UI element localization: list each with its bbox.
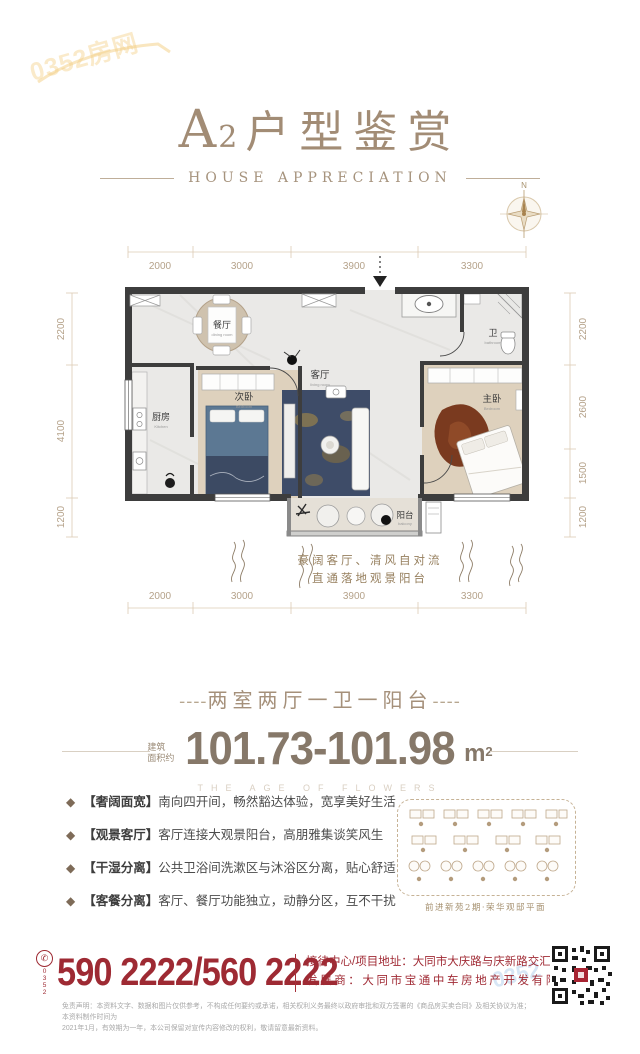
room-label-kitchen: 厨房 — [152, 411, 170, 422]
building-icon — [496, 836, 520, 852]
dim-top-1: 2000 — [149, 261, 172, 272]
area-prefix-2: 面积约 — [147, 753, 174, 764]
diamond-icon: ◆ — [66, 860, 75, 877]
legal-disclaimer: 免责声明：本资料文字、数据和图片仅供参考，不构成任何要约或承诺，相关权利义务最终… — [62, 1001, 532, 1034]
address-line-2: 发展商：大同市宝通中车房地产开发有限公司 — [306, 972, 588, 991]
building-icon — [536, 836, 560, 852]
compass-north-label: N — [521, 181, 527, 190]
building-icon — [478, 810, 502, 826]
dim-bottom-3: 3900 — [343, 591, 366, 602]
summary-block: ----两室两厅一卫一阳台---- 建筑 面积约 101.73-101.98 m… — [0, 684, 640, 793]
dim-bottom-1: 2000 — [149, 591, 172, 602]
building-icon — [505, 861, 526, 881]
diamond-icon: ◆ — [66, 827, 75, 844]
feature-text: 南向四开间，畅然豁达体验，宽享美好生活 — [158, 794, 396, 811]
dimension-left — [66, 293, 78, 537]
dim-bottom-2: 3000 — [231, 591, 254, 602]
dimension-bottom — [128, 602, 526, 614]
room-label-bedroom2-en: Bedroom — [236, 404, 253, 409]
title-number: 2 — [218, 120, 237, 155]
legal-line-1: 免责声明：本资料文字、数据和图片仅供参考，不构成任何要约或承诺，相关权利义务最终… — [62, 1001, 532, 1023]
room-label-kitchen-en: Kitchen — [154, 424, 167, 429]
title-cjk: 户型鉴赏 — [245, 107, 461, 158]
page-title: A2户型鉴赏 — [0, 96, 640, 160]
feature-text: 客厅、餐厅功能独立，动静分区，互不干扰 — [158, 893, 396, 910]
page-header: A2户型鉴赏 HOUSE APPRECIATION — [0, 96, 640, 186]
feature-text: 客厅连接大观景阳台，高朋雅集谈笑风生 — [158, 827, 383, 844]
room-label-living-en: living room — [310, 382, 330, 387]
dim-top-3: 3900 — [343, 261, 366, 272]
feature-tag: 【观景客厅】 — [83, 827, 158, 844]
plan-caption-line2: 直通落地观景阳台 — [312, 571, 428, 585]
building-icon — [412, 836, 436, 852]
qr-code[interactable] — [550, 944, 612, 1006]
subtitle: HOUSE APPRECIATION — [188, 170, 452, 186]
feature-tag: 【干湿分离】 — [83, 860, 158, 877]
dash-right: ---- — [433, 691, 461, 712]
dim-right-3: 1500 — [578, 461, 589, 484]
room-label-dining-en: dining room — [212, 332, 234, 337]
room-label-balcony: 阳台 — [396, 510, 413, 520]
dim-top-4: 3300 — [461, 261, 484, 272]
dimension-top — [128, 246, 526, 258]
building-icon — [512, 810, 536, 826]
dash-left: ---- — [179, 691, 207, 712]
legal-line-2: 2021年1月，有效期为一年，本公司保留对宣传内容修改的权利，敬请留意最新资料。 — [62, 1023, 532, 1034]
area-prefix: 建筑 面积约 — [147, 742, 174, 764]
entrance-arrow — [373, 256, 387, 287]
room-label-balcony-en: balcony — [398, 521, 412, 526]
title-letter: A — [179, 100, 219, 160]
dim-right-4: 1200 — [578, 505, 589, 528]
building-icon — [454, 836, 478, 852]
building-icon — [444, 810, 468, 826]
building-icon — [410, 810, 434, 826]
feature-tag: 【客餐分离】 — [83, 893, 158, 910]
area-value: 101.73-101.98 — [185, 721, 455, 775]
area-unit: m — [464, 740, 485, 768]
phone-icon-column: ✆ 0352 — [36, 950, 53, 996]
contact-bar: ✆ 0352 590 2222/560 2222 接待中心/项目地址：大同市大庆… — [0, 944, 640, 1004]
dim-left-2: 4100 — [56, 419, 67, 442]
area-rule-right — [490, 751, 578, 752]
dim-bottom-4: 3300 — [461, 591, 484, 602]
building-icon — [537, 861, 558, 881]
area-rule-left — [62, 751, 150, 752]
room-label-living: 客厅 — [310, 369, 330, 381]
dim-left-1: 2200 — [56, 317, 67, 340]
building-icon — [546, 810, 567, 826]
siteplan-map — [398, 800, 573, 893]
dim-right-1: 2200 — [578, 317, 589, 340]
plan-caption-line1: 豪阔客厅、清风自对流 — [298, 553, 443, 567]
dimension-right — [564, 293, 576, 537]
building-icon — [441, 861, 462, 881]
room-label-dining: 餐厅 — [213, 319, 231, 330]
room-label-bath-en: bathroom — [485, 340, 503, 345]
dim-top-2: 3000 — [231, 261, 254, 272]
diamond-icon: ◆ — [66, 794, 75, 811]
feature-list: ◆ 【奢阔面宽】 南向四开间，畅然豁达体验，宽享美好生活 ◆ 【观景客厅】 客厅… — [66, 794, 396, 926]
dim-left-3: 1200 — [56, 505, 67, 528]
floorplan: 2000 3000 3900 3300 2000 3000 3900 3300 … — [30, 240, 610, 620]
feature-item: ◆ 【干湿分离】 公共卫浴间洗漱区与沐浴区分离，贴心舒适 — [66, 860, 396, 877]
feature-item: ◆ 【客餐分离】 客厅、餐厅功能独立，动静分区，互不干扰 — [66, 893, 396, 910]
layout-line: ----两室两厅一卫一阳台---- — [0, 684, 640, 713]
dim-right-2: 2600 — [578, 395, 589, 418]
room-label-bedroom2: 次卧 — [234, 391, 254, 403]
diamond-icon: ◆ — [66, 893, 75, 910]
building-icon — [473, 861, 494, 881]
area-code: 0352 — [41, 968, 48, 996]
tagline: THE AGE OF FLOWERS — [0, 783, 640, 793]
area-row: 建筑 面积约 101.73-101.98 m 2 — [0, 721, 640, 775]
feature-item: ◆ 【奢阔面宽】 南向四开间，畅然豁达体验，宽享美好生活 — [66, 794, 396, 811]
building-icon — [409, 861, 430, 881]
area-prefix-1: 建筑 — [147, 742, 165, 753]
room-label-bath: 卫 — [488, 328, 497, 338]
subtitle-rule-left — [100, 178, 174, 179]
phone-icon: ✆ — [36, 950, 53, 967]
siteplan-box — [397, 799, 576, 896]
address-block: 接待中心/项目地址：大同市大庆路与庆新路交汇处 发展商：大同市宝通中车房地产开发… — [306, 953, 588, 991]
room-label-master: 主卧 — [482, 393, 502, 405]
contact-divider — [295, 954, 296, 992]
compass-icon: N — [496, 178, 552, 240]
address-line-1: 接待中心/项目地址：大同市大庆路与庆新路交汇处 — [306, 953, 588, 972]
feature-item: ◆ 【观景客厅】 客厅连接大观景阳台，高朋雅集谈笑风生 — [66, 827, 396, 844]
feature-tag: 【奢阔面宽】 — [83, 794, 158, 811]
layout-text: 两室两厅一卫一阳台 — [208, 688, 433, 712]
room-label-master-en: Bedroom — [484, 406, 501, 411]
feature-text: 公共卫浴间洗漱区与沐浴区分离，贴心舒适 — [158, 860, 396, 877]
siteplan-caption: 前进新苑2期·荣华观邸平面 — [397, 901, 574, 913]
